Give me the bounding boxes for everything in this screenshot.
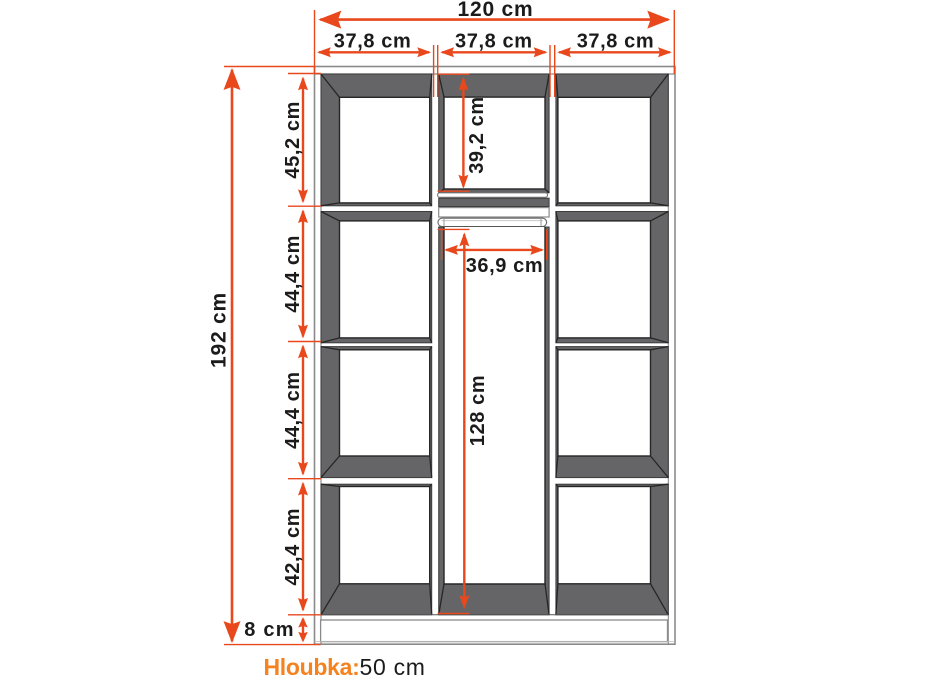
svg-text:8 cm: 8 cm <box>244 619 294 641</box>
svg-text:39,2 cm: 39,2 cm <box>466 96 488 174</box>
svg-text:192 cm: 192 cm <box>208 292 231 368</box>
svg-text:42,4 cm: 42,4 cm <box>282 508 304 586</box>
svg-text:45,2 cm: 45,2 cm <box>282 101 304 179</box>
svg-text:44,4 cm: 44,4 cm <box>282 235 304 313</box>
svg-text:128 cm: 128 cm <box>467 375 489 446</box>
svg-text:44,4 cm: 44,4 cm <box>282 371 304 449</box>
svg-text:Hloubka:50 cm: Hloubka:50 cm <box>264 654 426 680</box>
svg-text:37,8 cm: 37,8 cm <box>334 31 412 53</box>
svg-text:120 cm: 120 cm <box>457 0 533 21</box>
svg-text:37,8 cm: 37,8 cm <box>455 31 533 53</box>
svg-text:36,9 cm: 36,9 cm <box>466 255 544 277</box>
svg-text:37,8 cm: 37,8 cm <box>577 31 655 53</box>
